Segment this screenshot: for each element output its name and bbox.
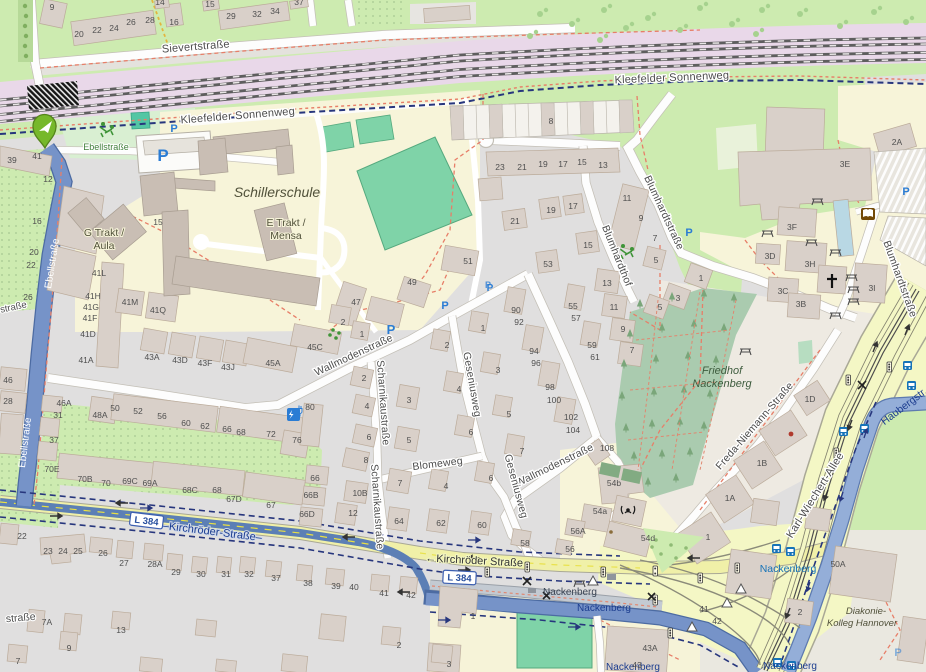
svg-text:P: P (441, 300, 448, 312)
svg-text:53: 53 (543, 259, 553, 269)
svg-text:41M: 41M (122, 297, 139, 307)
svg-text:26: 26 (98, 548, 108, 558)
svg-text:3H: 3H (805, 259, 816, 269)
svg-text:P: P (170, 123, 177, 135)
svg-text:66D: 66D (299, 509, 315, 519)
svg-text:66: 66 (222, 424, 232, 434)
svg-text:66: 66 (310, 473, 320, 483)
svg-text:Nackenberg: Nackenberg (692, 378, 752, 390)
svg-text:41G: 41G (83, 302, 99, 312)
svg-text:57: 57 (571, 313, 581, 323)
svg-text:Aula: Aula (93, 240, 114, 252)
svg-text:54a: 54a (593, 506, 607, 516)
svg-text:Kolleg Hannover: Kolleg Hannover (827, 618, 898, 629)
svg-text:41: 41 (379, 588, 389, 598)
svg-text:70E: 70E (44, 464, 59, 474)
svg-text:23: 23 (43, 546, 53, 556)
svg-text:3F: 3F (787, 222, 797, 232)
svg-text:3C: 3C (778, 286, 789, 296)
svg-text:Nackenberg: Nackenberg (543, 587, 597, 598)
svg-text:9: 9 (67, 643, 72, 653)
svg-text:51: 51 (463, 256, 473, 266)
svg-text:26: 26 (126, 17, 136, 27)
svg-text:4: 4 (457, 384, 462, 394)
svg-text:G Trakt /: G Trakt / (84, 227, 124, 239)
svg-text:24: 24 (58, 546, 68, 556)
svg-text:66B: 66B (303, 490, 318, 500)
svg-text:62: 62 (436, 518, 446, 528)
svg-text:41A: 41A (78, 355, 93, 365)
svg-text:9: 9 (639, 213, 644, 223)
svg-text:40: 40 (349, 582, 359, 592)
svg-text:17: 17 (558, 159, 568, 169)
svg-text:6: 6 (367, 432, 372, 442)
svg-text:P: P (685, 227, 692, 239)
svg-text:41Q: 41Q (150, 305, 166, 315)
svg-text:50: 50 (110, 403, 120, 413)
svg-text:2: 2 (397, 640, 402, 650)
svg-text:43D: 43D (172, 355, 188, 365)
svg-text:23: 23 (495, 162, 505, 172)
svg-text:9: 9 (50, 2, 55, 12)
svg-text:21: 21 (517, 162, 527, 172)
svg-text:3: 3 (447, 659, 452, 669)
svg-text:14: 14 (155, 0, 165, 7)
svg-text:19: 19 (538, 159, 548, 169)
svg-text:43: 43 (632, 660, 642, 670)
svg-text:1: 1 (706, 532, 711, 542)
svg-text:15: 15 (153, 217, 163, 227)
svg-text:46: 46 (3, 375, 13, 385)
svg-text:28: 28 (3, 396, 13, 406)
svg-text:60: 60 (181, 418, 191, 428)
svg-text:26: 26 (23, 292, 33, 302)
svg-text:72: 72 (266, 429, 276, 439)
svg-text:43A: 43A (144, 352, 159, 362)
svg-text:42: 42 (406, 590, 416, 600)
svg-text:12: 12 (348, 508, 358, 518)
svg-text:47: 47 (351, 297, 361, 307)
svg-text:39: 39 (7, 155, 17, 165)
svg-text:3B: 3B (796, 299, 807, 309)
svg-text:P: P (157, 146, 168, 165)
svg-text:5: 5 (654, 255, 659, 265)
svg-text:1: 1 (481, 323, 486, 333)
svg-text:2: 2 (798, 607, 803, 617)
svg-text:102: 102 (564, 412, 578, 422)
svg-text:15: 15 (577, 157, 587, 167)
svg-text:37: 37 (294, 0, 304, 7)
svg-text:20: 20 (74, 29, 84, 39)
svg-text:L 384: L 384 (447, 572, 472, 584)
svg-text:100: 100 (547, 395, 561, 405)
svg-text:P: P (902, 186, 909, 198)
svg-text:2A: 2A (892, 137, 903, 147)
svg-text:3: 3 (407, 395, 412, 405)
svg-text:69A: 69A (142, 478, 157, 488)
svg-text:7: 7 (398, 478, 403, 488)
svg-text:3D: 3D (765, 251, 776, 261)
svg-text:80: 80 (305, 402, 315, 412)
svg-text:70: 70 (101, 478, 111, 488)
svg-text:3I: 3I (868, 283, 875, 293)
svg-text:13: 13 (116, 625, 126, 635)
svg-text:3: 3 (676, 293, 681, 303)
svg-text:68C: 68C (182, 485, 198, 495)
svg-text:25: 25 (73, 546, 83, 556)
svg-text:24: 24 (109, 23, 119, 33)
svg-text:8: 8 (549, 116, 554, 126)
svg-text:76: 76 (292, 435, 302, 445)
svg-text:P: P (485, 280, 491, 290)
svg-text:108: 108 (600, 443, 614, 453)
svg-text:69C: 69C (122, 476, 138, 486)
svg-text:45A: 45A (265, 358, 280, 368)
svg-text:1: 1 (360, 329, 365, 339)
svg-text:54d: 54d (641, 533, 655, 543)
svg-text:56: 56 (157, 411, 167, 421)
svg-text:1: 1 (471, 611, 476, 621)
svg-text:4: 4 (444, 481, 449, 491)
svg-text:3E: 3E (840, 159, 851, 169)
svg-text:11: 11 (623, 193, 632, 203)
svg-text:20: 20 (29, 247, 39, 257)
svg-text:94: 94 (529, 346, 539, 356)
svg-text:32: 32 (252, 9, 262, 19)
svg-text:7: 7 (16, 656, 21, 666)
svg-text:9: 9 (621, 324, 626, 334)
svg-text:16: 16 (32, 216, 42, 226)
svg-text:39: 39 (331, 581, 341, 591)
svg-text:16: 16 (169, 17, 179, 27)
svg-text:68: 68 (212, 485, 222, 495)
svg-text:Nackenberg: Nackenberg (577, 603, 631, 614)
svg-text:10B: 10B (352, 488, 367, 498)
svg-text:43J: 43J (221, 362, 235, 372)
svg-text:41H: 41H (85, 291, 101, 301)
svg-text:43A: 43A (642, 643, 657, 653)
svg-text:28: 28 (145, 15, 155, 25)
svg-text:Nackenberg: Nackenberg (760, 563, 817, 575)
svg-text:2: 2 (341, 317, 346, 327)
svg-text:29: 29 (171, 567, 181, 577)
svg-text:56A: 56A (570, 526, 585, 536)
svg-text:50A: 50A (830, 559, 845, 569)
svg-text:13: 13 (598, 160, 608, 170)
svg-text:22: 22 (17, 531, 27, 541)
svg-text:41D: 41D (80, 329, 96, 339)
svg-text:21: 21 (510, 216, 520, 226)
svg-text:13: 13 (602, 278, 612, 288)
svg-text:1D: 1D (805, 394, 816, 404)
svg-text:42: 42 (712, 616, 722, 626)
svg-text:30: 30 (196, 569, 206, 579)
svg-text:92: 92 (514, 317, 524, 327)
svg-text:Ebellstraße: Ebellstraße (83, 142, 129, 152)
svg-text:58: 58 (520, 538, 530, 548)
svg-text:41: 41 (699, 604, 709, 614)
svg-text:62: 62 (200, 421, 210, 431)
svg-text:52: 52 (133, 406, 143, 416)
svg-text:5: 5 (407, 435, 412, 445)
svg-text:28A: 28A (147, 559, 162, 569)
svg-text:61: 61 (590, 352, 600, 362)
svg-text:60: 60 (477, 520, 487, 530)
svg-text:3: 3 (496, 365, 501, 375)
svg-text:8: 8 (364, 455, 369, 465)
svg-text:1B: 1B (757, 458, 768, 468)
svg-text:31: 31 (53, 410, 63, 420)
svg-text:41F: 41F (83, 313, 98, 323)
svg-text:1A: 1A (725, 493, 736, 503)
svg-text:45C: 45C (307, 342, 323, 352)
svg-text:7: 7 (653, 233, 658, 243)
svg-text:38: 38 (303, 578, 313, 588)
svg-text:70B: 70B (77, 474, 92, 484)
svg-text:68: 68 (236, 427, 246, 437)
svg-text:54b: 54b (607, 478, 621, 488)
svg-text:7: 7 (520, 446, 525, 456)
svg-text:59: 59 (587, 340, 597, 350)
svg-text:55: 55 (568, 301, 578, 311)
svg-text:104: 104 (566, 425, 580, 435)
svg-text:Friedhof: Friedhof (702, 365, 743, 377)
svg-text:17: 17 (568, 201, 578, 211)
svg-text:E Trakt /: E Trakt / (266, 217, 305, 229)
svg-text:49: 49 (407, 277, 417, 287)
svg-text:41: 41 (32, 151, 42, 161)
svg-text:96: 96 (531, 358, 541, 368)
svg-text:4: 4 (365, 401, 370, 411)
svg-text:31: 31 (221, 569, 231, 579)
svg-text:32: 32 (244, 569, 254, 579)
svg-text:43F: 43F (198, 358, 213, 368)
svg-text:98: 98 (545, 382, 555, 392)
svg-text:Schillerschule: Schillerschule (234, 184, 321, 200)
svg-text:22: 22 (92, 25, 102, 35)
svg-text:34: 34 (270, 6, 280, 16)
svg-text:2: 2 (362, 373, 367, 383)
svg-text:37: 37 (49, 435, 59, 445)
svg-text:56: 56 (565, 544, 575, 554)
svg-text:2: 2 (445, 340, 450, 350)
svg-text:29: 29 (226, 11, 236, 21)
svg-text:Mensa: Mensa (270, 230, 302, 242)
svg-text:15: 15 (205, 0, 215, 9)
svg-text:67: 67 (266, 500, 276, 510)
svg-text:64: 64 (394, 516, 404, 526)
svg-text:12: 12 (43, 174, 53, 184)
svg-text:P: P (894, 647, 901, 659)
svg-text:5: 5 (658, 302, 663, 312)
svg-text:46A: 46A (56, 398, 71, 408)
svg-text:67D: 67D (226, 494, 242, 504)
svg-text:11: 11 (610, 302, 619, 312)
svg-text:6: 6 (469, 427, 474, 437)
svg-text:15: 15 (583, 240, 593, 250)
svg-text:Nackenberg: Nackenberg (763, 661, 817, 672)
svg-text:41L: 41L (92, 268, 106, 278)
svg-text:Diakonie-: Diakonie- (846, 606, 886, 617)
svg-text:27: 27 (119, 558, 129, 568)
svg-text:90: 90 (511, 305, 521, 315)
svg-text:19: 19 (546, 205, 556, 215)
svg-text:22: 22 (26, 260, 36, 270)
svg-text:1: 1 (699, 273, 704, 283)
svg-text:7: 7 (630, 345, 635, 355)
svg-text:48A: 48A (92, 410, 107, 420)
svg-text:5: 5 (507, 409, 512, 419)
svg-text:6: 6 (489, 473, 494, 483)
svg-text:7A: 7A (42, 617, 53, 627)
svg-text:37: 37 (271, 573, 281, 583)
